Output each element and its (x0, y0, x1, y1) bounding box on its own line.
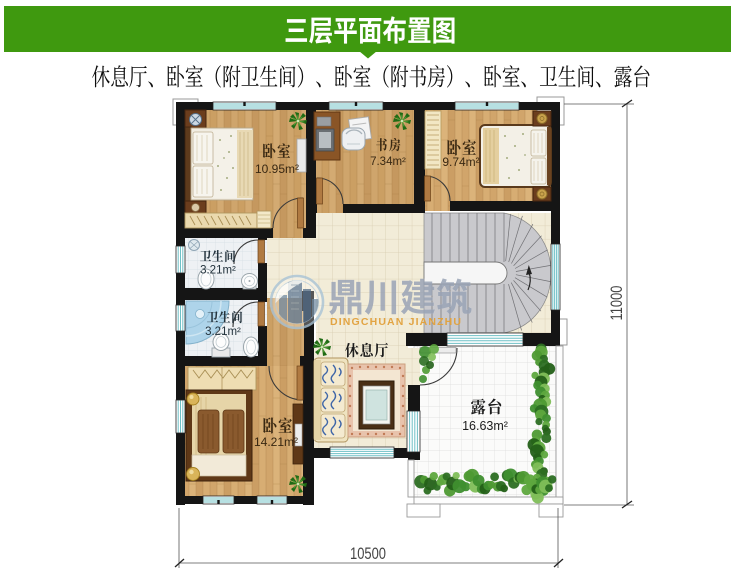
svg-text:9.74m²: 9.74m² (442, 155, 479, 169)
svg-text:10.95m²: 10.95m² (255, 162, 299, 176)
svg-text:14.21m²: 14.21m² (254, 435, 298, 449)
svg-text:3.21m²: 3.21m² (205, 326, 241, 338)
svg-text:16.63m²: 16.63m² (462, 419, 508, 433)
svg-text:7.34m²: 7.34m² (370, 156, 406, 168)
svg-text:10500: 10500 (350, 544, 386, 563)
svg-text:3.21m²: 3.21m² (200, 265, 236, 277)
svg-text:11000: 11000 (607, 286, 626, 321)
svg-text:DINGCHUAN JIANZHU: DINGCHUAN JIANZHU (330, 316, 462, 328)
